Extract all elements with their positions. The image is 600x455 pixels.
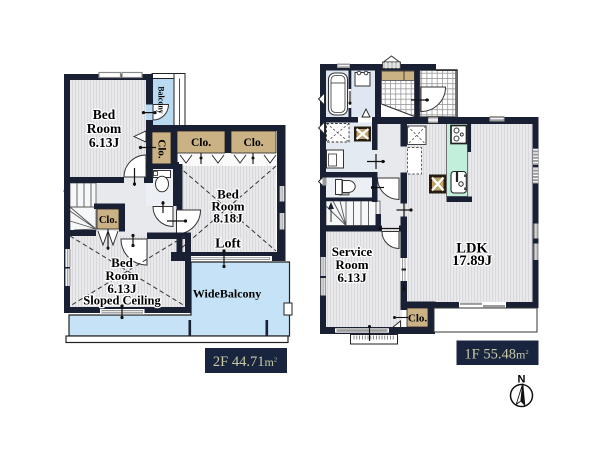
svg-text:Clo.: Clo.: [99, 215, 118, 226]
svg-text:N: N: [518, 374, 526, 386]
svg-text:8.18J: 8.18J: [213, 211, 243, 226]
svg-text:Sloped Ceiling: Sloped Ceiling: [83, 294, 161, 308]
svg-text:Clo.: Clo.: [156, 139, 168, 159]
svg-text:Room: Room: [87, 121, 122, 136]
svg-text:1F 55.48m2: 1F 55.48m2: [464, 347, 528, 363]
svg-text:WideBalcony: WideBalcony: [193, 287, 261, 301]
svg-text:Loft: Loft: [215, 237, 241, 252]
svg-text:Clo.: Clo.: [408, 313, 428, 325]
svg-text:Bed: Bed: [93, 107, 116, 122]
svg-text:2F 44.71m2: 2F 44.71m2: [213, 354, 277, 370]
svg-text:6.13J: 6.13J: [89, 135, 120, 150]
svg-text:6.13J: 6.13J: [337, 270, 367, 285]
svg-text:Clo.: Clo.: [243, 137, 263, 149]
svg-text:Balcony: Balcony: [157, 86, 166, 114]
svg-text:Clo.: Clo.: [191, 137, 211, 149]
svg-text:17.89J: 17.89J: [452, 253, 492, 269]
